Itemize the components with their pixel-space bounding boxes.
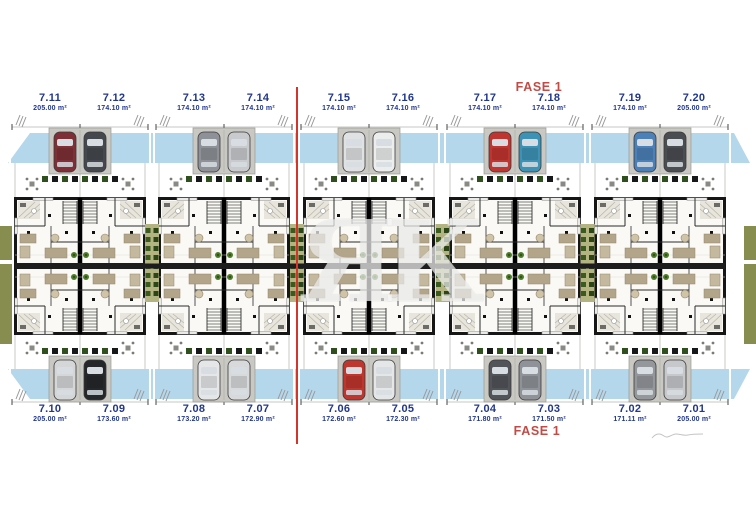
bush bbox=[351, 348, 357, 354]
bush bbox=[692, 348, 698, 354]
bush bbox=[527, 176, 533, 182]
bush bbox=[42, 176, 48, 182]
bush bbox=[527, 348, 533, 354]
bush bbox=[622, 176, 628, 182]
bush bbox=[547, 176, 553, 182]
bush bbox=[487, 176, 493, 182]
bush bbox=[517, 348, 523, 354]
bush bbox=[246, 176, 252, 182]
bush bbox=[401, 176, 407, 182]
party-spine bbox=[595, 263, 725, 269]
bush bbox=[72, 348, 78, 354]
bush bbox=[652, 176, 658, 182]
bush bbox=[487, 348, 493, 354]
bush bbox=[52, 348, 58, 354]
bush bbox=[186, 176, 192, 182]
bush bbox=[622, 348, 628, 354]
bush bbox=[256, 348, 262, 354]
party-spine bbox=[159, 263, 289, 269]
bush bbox=[672, 348, 678, 354]
bush bbox=[82, 348, 88, 354]
bush bbox=[682, 348, 688, 354]
bush bbox=[547, 348, 553, 354]
bush bbox=[642, 348, 648, 354]
bush bbox=[72, 176, 78, 182]
party-spine bbox=[15, 263, 145, 269]
bush bbox=[391, 176, 397, 182]
bush bbox=[236, 176, 242, 182]
bush bbox=[246, 348, 252, 354]
bush bbox=[226, 348, 232, 354]
bush bbox=[682, 176, 688, 182]
bush bbox=[112, 176, 118, 182]
bush bbox=[92, 176, 98, 182]
site-plan-graphic bbox=[0, 0, 756, 528]
bush bbox=[216, 348, 222, 354]
bush bbox=[331, 348, 337, 354]
bush bbox=[381, 348, 387, 354]
bush bbox=[632, 348, 638, 354]
bush bbox=[381, 176, 387, 182]
bush bbox=[537, 348, 543, 354]
bush bbox=[331, 176, 337, 182]
bush bbox=[497, 348, 503, 354]
hedge bbox=[436, 224, 450, 302]
bush bbox=[226, 176, 232, 182]
edge-garden bbox=[744, 226, 756, 260]
bush bbox=[632, 176, 638, 182]
bush bbox=[92, 348, 98, 354]
bush bbox=[371, 348, 377, 354]
bush bbox=[341, 176, 347, 182]
bush bbox=[52, 176, 58, 182]
bush bbox=[507, 176, 513, 182]
hedge bbox=[145, 224, 159, 302]
bush bbox=[477, 176, 483, 182]
bush bbox=[642, 176, 648, 182]
phase-label-top: FASE 1 bbox=[501, 80, 577, 94]
phase-label-bottom: FASE 1 bbox=[499, 424, 575, 438]
bush bbox=[186, 348, 192, 354]
bush bbox=[82, 176, 88, 182]
bush bbox=[341, 348, 347, 354]
bush bbox=[361, 348, 367, 354]
bush bbox=[196, 348, 202, 354]
bush bbox=[216, 176, 222, 182]
bush bbox=[517, 176, 523, 182]
bush bbox=[196, 176, 202, 182]
bush bbox=[537, 176, 543, 182]
bush bbox=[102, 348, 108, 354]
site-plan-page: ЯК FASE 1 FASE 1 7.11205.00 m²7.12174.10… bbox=[0, 0, 756, 528]
bush bbox=[652, 348, 658, 354]
bush bbox=[112, 348, 118, 354]
bush bbox=[206, 348, 212, 354]
phase-divider-line bbox=[296, 87, 298, 444]
bush bbox=[256, 176, 262, 182]
bush bbox=[62, 348, 68, 354]
signature-watermark bbox=[652, 434, 703, 438]
bush bbox=[672, 176, 678, 182]
bush bbox=[351, 176, 357, 182]
bush bbox=[361, 176, 367, 182]
bush bbox=[102, 176, 108, 182]
bush bbox=[236, 348, 242, 354]
party-spine bbox=[304, 263, 434, 269]
bush bbox=[662, 176, 668, 182]
bush bbox=[371, 176, 377, 182]
edge-garden bbox=[0, 264, 12, 344]
bush bbox=[42, 348, 48, 354]
bush bbox=[662, 348, 668, 354]
bush bbox=[477, 348, 483, 354]
bush bbox=[507, 348, 513, 354]
bush bbox=[692, 176, 698, 182]
bush bbox=[401, 348, 407, 354]
bush bbox=[62, 176, 68, 182]
hedge bbox=[581, 224, 595, 302]
party-spine bbox=[450, 263, 580, 269]
edge-garden bbox=[0, 226, 12, 260]
edge-garden bbox=[744, 264, 756, 344]
bush bbox=[206, 176, 212, 182]
bush bbox=[497, 176, 503, 182]
bush bbox=[391, 348, 397, 354]
